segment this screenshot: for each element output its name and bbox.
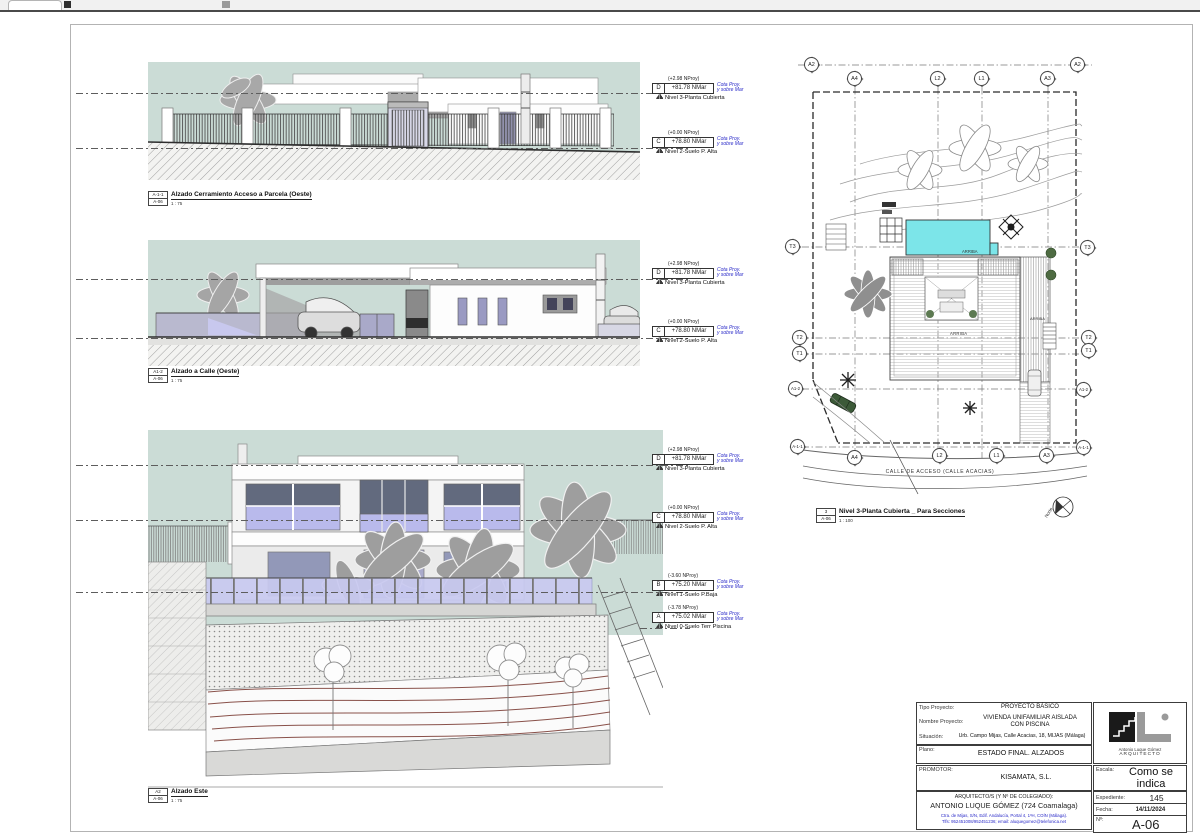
toolbar-icon [222, 1, 230, 8]
situacion-label: Situación: [917, 733, 953, 741]
palm-tree [844, 270, 892, 318]
browser-chrome [0, 0, 1200, 12]
logo-role: ARQUITECTO [1119, 752, 1160, 757]
level-annotation-c: (+0.00 NProy) C +78.80 NMar Cota Proy.y … [652, 319, 777, 344]
street-and-ground [148, 337, 640, 366]
grid-marker-a1-2: A1-2 [1076, 382, 1091, 397]
architect-logo-icon [1105, 710, 1175, 746]
drawing-label-elevation-2: A1-2A-06 Alzado a Calle (Oeste)1 : 75 [148, 368, 239, 383]
expediente-label: Expediente: [1094, 794, 1127, 802]
grid-marker-a4: A4 [847, 71, 862, 86]
level-annotation-a: (-3.78 NProy) A +75.02 NMar Cota Proy.y … [652, 605, 777, 630]
title-block-project: Tipo Proyecto: PROYECTO BÁSICO Nombre Pr… [916, 702, 1092, 745]
level-annotation-d: (+2.98 NProy) D +81.78 NMar Cota Proy.y … [652, 261, 777, 286]
level-marker-icon [656, 337, 663, 342]
fecha-label: Fecha: [1094, 806, 1115, 814]
level-line-d1 [76, 93, 690, 94]
arquitecto-label: ARQUITECTO/S (Y Nº DE COLEGIADO): [917, 794, 1091, 800]
browser-tab[interactable] [8, 0, 62, 10]
level-annotation-b: (-3.60 NProy) B +75.20 NMar Cota Proy.y … [652, 573, 777, 598]
escala-value: Como se indica [1116, 766, 1186, 790]
level-marker-icon [656, 94, 663, 99]
expediente-value: 145 [1127, 793, 1186, 803]
level-line-c1 [76, 148, 690, 149]
terrain-contours [830, 124, 1082, 234]
grid-marker-t2: T2 [792, 330, 807, 345]
stairs-right [1043, 323, 1056, 349]
num-label: Nº: [1094, 816, 1106, 824]
level-marker-icon [656, 279, 663, 284]
level-line-c2 [76, 338, 690, 339]
arriba-right-label: ARRIBA [1030, 316, 1045, 321]
chimney [521, 74, 530, 144]
level-annotation-c: (+0.00 NProy) C +78.80 NMar Cota Proy.y … [652, 130, 777, 155]
promotor-value: KISAMATA, S.L. [961, 774, 1091, 783]
car-white [1028, 370, 1041, 396]
nombre-label: Nombre Proyecto: [917, 718, 969, 726]
title-block-plano: Plano: ESTADO FINAL. ALZADOS [916, 745, 1092, 764]
parasol-icon [999, 215, 1023, 239]
level-annotation-d: (+2.98 NProy) D +81.78 NMar Cota Proy.y … [652, 76, 777, 101]
grid-marker-a-1-1: A-1-1 [790, 439, 805, 454]
cota-note: Cota Proy.y sobre Mar [717, 83, 743, 95]
title-block-architect: ARQUITECTO/S (Y Nº DE COLEGIADO): ANTONI… [916, 791, 1092, 830]
level-line-d3 [76, 465, 690, 466]
reed-fence-left [148, 522, 237, 564]
tipo-label: Tipo Proyecto: [917, 704, 969, 712]
nombre-value: VIVIENDA UNIFAMILIAR AISLADA CON PISCINA [969, 715, 1091, 730]
grid-marker-a3: A3 [1040, 71, 1055, 86]
elevation-drawing-east [148, 430, 663, 795]
north-label: Norte [1044, 506, 1054, 518]
level-marker-icon [656, 465, 663, 470]
cota-note: Cota Proy.y sobre Mar [717, 612, 743, 624]
access-gate [388, 102, 428, 148]
level-annotation-c: (+0.00 NProy) C +78.80 NMar Cota Proy.y … [652, 505, 777, 530]
promotor-label: PROMOTOR: [917, 766, 961, 774]
plano-value: ESTADO FINAL. ALZADOS [951, 750, 1091, 759]
grid-marker-l1: L1 [989, 448, 1004, 463]
grid-marker-l1: L1 [974, 71, 989, 86]
stairs-top-left [826, 224, 846, 250]
cota-note: Cota Proy.y sobre Mar [717, 454, 743, 466]
grid-marker-a3: A3 [1039, 448, 1054, 463]
title-block-logo: Antonio Luque Gómez ARQUITECTO [1093, 702, 1187, 764]
arriba-pool-label: ARRIBA [962, 249, 978, 254]
drawing-label-elevation-3: A2A-06 Alzado Este1 : 75 [148, 788, 208, 803]
drawing-label-site-plan: 3A-06 Nivel 3-Planta Cubierta _ Para Sec… [816, 508, 965, 523]
plano-label: Plano: [917, 746, 951, 754]
pool: ARRIBA [906, 220, 998, 255]
car-green [829, 392, 857, 413]
cota-note: Cota Proy.y sobre Mar [717, 137, 743, 149]
level-line-d2 [76, 279, 690, 280]
cota-note: Cota Proy.y sobre Mar [717, 512, 743, 524]
title-block-escala: Escala: Como se indica [1093, 765, 1187, 791]
driveway [813, 382, 885, 443]
tipo-value: PROYECTO BÁSICO [969, 704, 1091, 712]
num-value: A-06 [1106, 817, 1186, 832]
cota-note: Cota Proy.y sobre Mar [717, 268, 743, 280]
grid-marker-a2: A2 [1070, 57, 1085, 72]
level-marker-icon [656, 623, 663, 628]
cota-note: Cota Proy.y sobre Mar [717, 326, 743, 338]
grid-marker-a-1-1: A-1-1 [1076, 440, 1091, 455]
upper-windows [246, 480, 520, 532]
fecha-value: 14/11/2024 [1115, 807, 1186, 813]
arquitecto-value: ANTONIO LUQUE GÓMEZ (724 Coamalaga) [917, 801, 1091, 810]
north-arrow-icon [1053, 497, 1073, 517]
level-marker-icon [656, 148, 663, 153]
grid-marker-t1: T1 [1081, 343, 1096, 358]
grid-marker-a1-2: A1-2 [788, 381, 803, 396]
escala-label: Escala: [1094, 766, 1116, 774]
section-line [890, 440, 918, 494]
grid-marker-l2: L2 [930, 71, 945, 86]
grid-marker-a4: A4 [847, 450, 862, 465]
browser-tab-icon [64, 1, 71, 8]
grid-marker-a2: A2 [804, 57, 819, 72]
elevation-drawing-access-west [148, 62, 640, 185]
drawing-label-elevation-1: A-1-1A-06 Alzado Cerramiento Acceso a Pa… [148, 191, 312, 206]
level-marker-icon [656, 591, 663, 596]
contact-line-2: Tlfs: 952451008/952451236; email: aluque… [917, 819, 1091, 825]
grid-marker-l2: L2 [932, 448, 947, 463]
grid-marker-t3: T3 [785, 239, 800, 254]
courtyard [925, 277, 978, 320]
contact-line-1: Ctra. de Mijas, S/N, Edif. Andalucía, Po… [917, 813, 1091, 819]
street-label: CALLE DE ACCESO (CALLE ACACIAS) [886, 469, 995, 475]
balustrade [160, 578, 596, 616]
elevation-drawing-street-west [148, 240, 640, 371]
title-block-promotor: PROMOTOR: KISAMATA, S.L. [916, 765, 1092, 791]
grid-marker-t1: T1 [792, 346, 807, 361]
level-marker-icon [656, 523, 663, 528]
level-line-c3 [76, 520, 690, 521]
arriba-center-label: ARRIBA [950, 331, 967, 336]
cota-note: Cota Proy.y sobre Mar [717, 580, 743, 592]
level-line-b3 [76, 592, 690, 593]
situacion-value: Urb. Campo Mijas, Calle Acacias, 18, MIJ… [953, 733, 1091, 740]
grid-marker-t3: T3 [1080, 240, 1095, 255]
title-block-number: Nº: A-06 [1093, 815, 1187, 833]
level-annotation-d: (+2.98 NProy) D +81.78 NMar Cota Proy.y … [652, 447, 777, 472]
